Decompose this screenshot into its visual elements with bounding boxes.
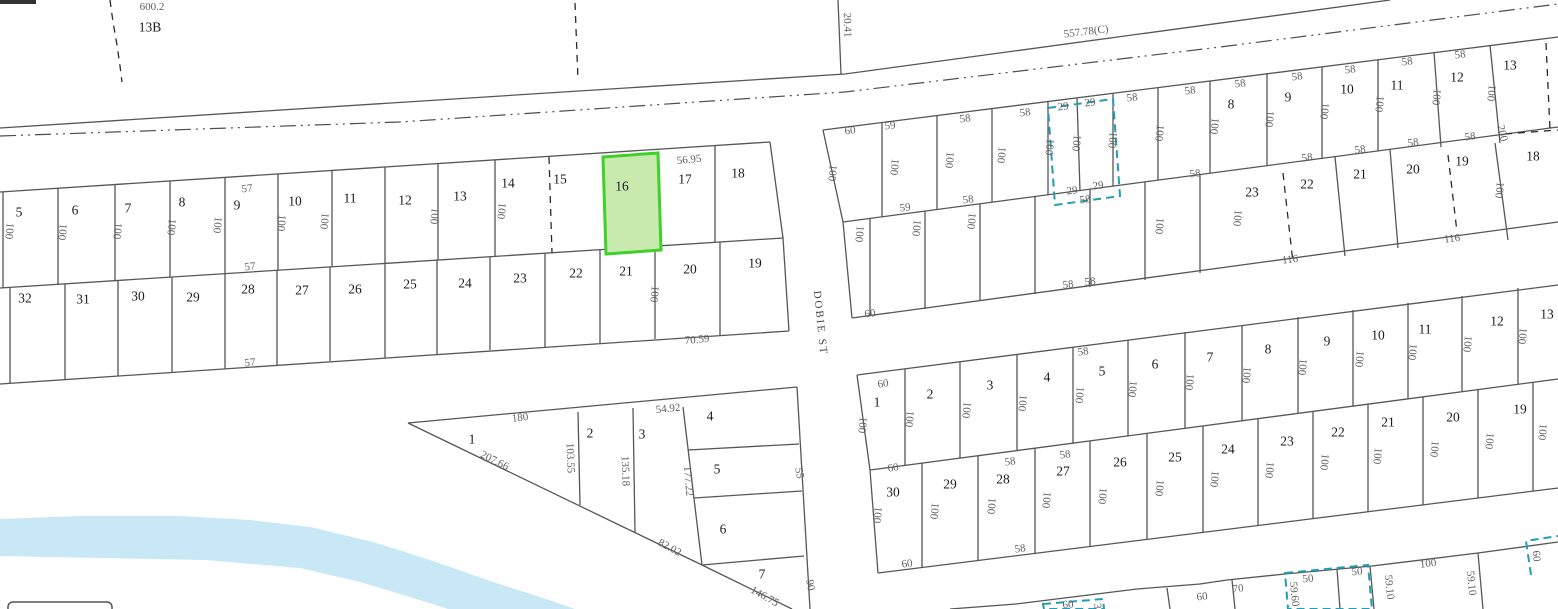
partial-label-box <box>8 602 112 609</box>
dimension-label: 70 <box>1232 582 1245 595</box>
lot-number-label: 22 <box>1331 425 1345 440</box>
lot-number-label: 24 <box>458 276 472 291</box>
dimension-label: 100 <box>870 506 884 524</box>
parcel-boundary <box>578 412 580 505</box>
lot-number-label: 18 <box>1526 149 1540 164</box>
dimension-label: 60 <box>1062 598 1075 609</box>
selected-parcel[interactable] <box>603 153 661 254</box>
dimension-label: 100 <box>1095 487 1109 505</box>
dimension-label: 146.75 <box>748 584 781 609</box>
dimension-label: 58 <box>1019 106 1032 119</box>
dimension-label: 100 <box>1152 217 1166 235</box>
dimension-label: 60 <box>844 124 857 137</box>
dimension-label: 57 <box>244 356 257 369</box>
dimension-label: 100 <box>1207 117 1221 135</box>
lot-number-label: 7 <box>125 201 132 216</box>
map-canvas[interactable]: 600.213B20.41557.78(C)567891011121314151… <box>0 0 1558 609</box>
lot-number-label: 10 <box>1371 328 1385 343</box>
dimension-label: 100 <box>1372 95 1386 113</box>
dimension-label: 100 <box>1152 124 1166 142</box>
lot-number-label: 2 <box>587 426 594 441</box>
lot-number-label: 28 <box>241 282 255 297</box>
lot-number-label: 25 <box>1168 450 1182 465</box>
dimension-label: 100 <box>1484 84 1498 102</box>
dimension-label: 58 <box>1301 151 1314 164</box>
dimension-label: 58 <box>959 112 972 125</box>
parcel-boundary <box>694 491 802 498</box>
lot-number-label: 20 <box>1446 410 1460 425</box>
lot-number-label: 10 <box>1340 82 1354 97</box>
dimension-label: 100 <box>902 410 916 428</box>
street-label-dobie-st: DOBIE ST <box>811 290 830 356</box>
lot-number-label: 6 <box>720 522 727 537</box>
parcel-boundary <box>1390 149 1398 248</box>
dimension-label: 100 <box>1152 479 1166 497</box>
dimension-label: 116 <box>1443 232 1461 246</box>
dimension-label: 60 <box>887 461 900 474</box>
dimension-label: 29 <box>1092 179 1105 192</box>
dimension-label: 180 <box>511 411 529 425</box>
lot-number-label: 4 <box>1044 370 1051 385</box>
lot-number-label: 11 <box>1419 322 1432 337</box>
lot-number-label: 14 <box>501 176 515 191</box>
lot-number-label: 8 <box>1228 97 1235 112</box>
lot-number-label: 6 <box>1152 357 1159 372</box>
lot-number-label: 27 <box>1056 464 1070 479</box>
lot-number-label: 23 <box>1280 434 1294 449</box>
parcel-boundary <box>1167 588 1170 609</box>
dimension-label: 20.41 <box>841 12 854 37</box>
dimension-label: 100 <box>2 222 16 240</box>
dimension-label: 58 <box>1077 345 1090 358</box>
dimension-label: 207.66 <box>478 449 511 474</box>
dimension-label: 100 <box>1535 423 1549 441</box>
lot-number-label: 1 <box>874 395 881 410</box>
dimension-label: 58 <box>1126 91 1139 104</box>
lot-number-label: 8 <box>179 195 186 210</box>
lot-number-label: 27 <box>295 283 309 298</box>
dimension-label: 58 <box>1291 70 1304 83</box>
lot-number-label: 23 <box>513 271 527 286</box>
dimension-label: 57 <box>244 260 257 273</box>
dimension-label: 100 <box>1419 557 1437 571</box>
dimension-label: 100 <box>852 225 866 243</box>
dimension-label: 100 <box>1482 432 1496 450</box>
dimension-label: 100 <box>1207 470 1221 488</box>
dimension-label: 100 <box>927 502 941 520</box>
lot-number-label: 26 <box>348 282 362 297</box>
dimension-label: 58 <box>1062 278 1075 291</box>
highlighted-parcel-outline[interactable] <box>1048 99 1120 205</box>
dimension-label: 100 <box>1182 373 1196 391</box>
dimension-label: 100 <box>1230 209 1244 227</box>
dimension-label: 177.22 <box>681 465 696 496</box>
lot-number-label: 23 <box>1245 185 1259 200</box>
dimension-label: 56.95 <box>676 153 702 168</box>
lot-number-label: 3 <box>639 427 646 442</box>
lot-number-label: 13B <box>139 20 162 35</box>
lot-number-label: 2 <box>927 387 934 402</box>
dimension-label: 100 <box>110 222 124 240</box>
dimension-label: 58 <box>1014 542 1027 555</box>
parcel-boundary <box>823 130 852 318</box>
dimension-label: 58 <box>1059 448 1072 461</box>
lot-number-label: 17 <box>678 172 692 187</box>
dimension-label: 59 <box>899 201 912 214</box>
dimension-label: 100 <box>274 214 288 232</box>
dimension-label: 60 <box>901 557 914 570</box>
parcel-boundary-dashed <box>1546 43 1550 130</box>
lot-number-label: 19 <box>748 256 762 271</box>
dimension-label: 200 <box>1494 124 1510 143</box>
lot-number-label: 22 <box>1300 177 1314 192</box>
dimension-label: 116 <box>1281 253 1299 267</box>
dimension-label: 135.18 <box>619 456 632 487</box>
dimension-label: 100 <box>887 158 901 176</box>
dimension-label: 100 <box>427 207 441 225</box>
dimension-label: 100 <box>1460 335 1474 353</box>
dimension-label: 100 <box>1492 181 1506 199</box>
dimension-label: 100 <box>1515 327 1529 345</box>
dimension-label: 58 <box>1189 167 1202 180</box>
parcel-boundary-dashed <box>1283 173 1293 263</box>
parcel-boundary <box>797 387 810 609</box>
dimension-label: 100 <box>1072 386 1086 404</box>
parcel-boundary <box>702 556 804 565</box>
dimension-label: 3 <box>1091 603 1103 609</box>
dimension-label: 103.55 <box>564 443 577 474</box>
dimension-label: 100 <box>1262 461 1276 479</box>
parcel-boundary <box>838 0 841 74</box>
lot-number-label: 3 <box>987 378 994 393</box>
dimension-label: 100 <box>942 151 956 169</box>
dimension-label: 100 <box>964 212 978 230</box>
lot-number-label: 10 <box>288 194 302 209</box>
lot-number-label: 16 <box>615 179 629 194</box>
lot-number-label: 13 <box>1503 58 1517 73</box>
lot-number-label: 28 <box>996 472 1010 487</box>
dimension-label: 50 <box>1351 565 1364 578</box>
lot-number-label: 30 <box>886 485 900 500</box>
lot-number-label: 9 <box>234 198 241 213</box>
lot-number-label: 24 <box>1221 442 1235 457</box>
dimension-label: 100 <box>1317 102 1331 120</box>
dimension-label: 100 <box>317 212 331 230</box>
parcel-boundary <box>0 0 1390 128</box>
dimension-label: 58 <box>1234 77 1247 90</box>
parcel-boundary <box>688 444 799 450</box>
dimension-label: 90 <box>803 579 817 592</box>
water-body <box>0 516 575 609</box>
dimension-label: 57 <box>241 182 254 195</box>
lot-number-label: 5 <box>1099 364 1106 379</box>
dimension-label: 100 <box>825 164 839 182</box>
lot-number-label: 5 <box>714 462 721 477</box>
lot-number-label: 4 <box>707 409 714 424</box>
dimension-label: 100 <box>1370 447 1384 465</box>
dimension-label: 100 <box>984 497 998 515</box>
dimension-label: 60 <box>864 307 877 320</box>
dimension-label: 100 <box>647 285 661 303</box>
dimension-label: 60 <box>1530 550 1543 563</box>
dimension-label: 100 <box>1352 350 1366 368</box>
dimension-label: 100 <box>909 219 923 237</box>
dimension-label: 100 <box>959 401 973 419</box>
parcel-boundary-dashed <box>110 0 122 82</box>
lot-number-label: 32 <box>18 291 32 306</box>
lot-number-label: 11 <box>344 191 357 206</box>
lot-number-label: 15 <box>553 172 567 187</box>
lot-number-label: 22 <box>569 266 583 281</box>
dimension-label: 100 <box>855 416 869 434</box>
lot-number-label: 5 <box>16 205 23 220</box>
parcel-boundary <box>408 387 797 423</box>
dimension-label: 58 <box>1454 48 1467 61</box>
dimension-label: 58 <box>1407 136 1420 149</box>
dimension-label: 100 <box>494 202 508 220</box>
dimension-label: 60 <box>877 377 890 390</box>
lot-number-label: 7 <box>1207 350 1214 365</box>
dimension-label: 58 <box>1401 55 1414 68</box>
lot-number-label: 20 <box>683 262 697 277</box>
lot-number-label: 21 <box>1353 167 1367 182</box>
lot-number-label: 9 <box>1285 90 1292 105</box>
dimension-label: 55 <box>792 467 806 480</box>
parcel-map[interactable]: 600.213B20.41557.78(C)567891011121314151… <box>0 0 1558 609</box>
lot-number-label: 12 <box>1450 70 1464 85</box>
parcel-boundary-dashed <box>575 3 578 80</box>
dimension-label: 100 <box>1105 131 1119 149</box>
lot-number-label: 9 <box>1324 334 1331 349</box>
lot-number-label: 25 <box>403 277 417 292</box>
lot-number-label: 31 <box>76 292 90 307</box>
dimension-label: 59.10 <box>1464 570 1479 596</box>
lot-number-label: 26 <box>1113 455 1127 470</box>
dimension-label: 100 <box>164 218 178 236</box>
parcel-boundary <box>1337 569 1340 609</box>
lot-number-label: 6 <box>72 203 79 218</box>
dimension-label: 29 <box>1057 100 1070 113</box>
dimension-label: 59.60 <box>1287 581 1302 607</box>
dimension-label: 58 <box>1079 193 1092 206</box>
parcel-boundary-dashed <box>549 157 552 253</box>
dimension-label: 100 <box>1239 366 1253 384</box>
dimension-label: 100 <box>1427 440 1441 458</box>
dimension-label: 58 <box>1084 275 1097 288</box>
dimension-label: 58 <box>1184 84 1197 97</box>
dimension-label: 70.59 <box>684 333 710 347</box>
dimension-label: 58 <box>1344 63 1357 76</box>
lot-number-label: 11 <box>1391 78 1404 93</box>
lot-number-label: 8 <box>1265 342 1272 357</box>
dimension-label: 58 <box>1464 130 1477 143</box>
lot-number-label: 20 <box>1406 162 1420 177</box>
lot-number-label: 19 <box>1513 402 1527 417</box>
dimension-label: 60 <box>1196 590 1209 603</box>
dimension-label: 100 <box>1262 110 1276 128</box>
dimension-label: 29 <box>1066 184 1079 197</box>
parcel-boundary <box>1335 157 1345 256</box>
dimension-label: 100 <box>1069 134 1083 152</box>
lot-number-label: 21 <box>619 264 633 279</box>
dimension-label: 100 <box>1429 88 1443 106</box>
dimension-label: 557.78(C) <box>1063 23 1109 40</box>
dimension-label: 29 <box>1084 96 1097 109</box>
lot-number-label: 18 <box>731 166 745 181</box>
dimension-label: 100 <box>1125 380 1139 398</box>
dimension-label: 100 <box>1405 343 1419 361</box>
dimension-label: 82.02 <box>656 537 683 559</box>
lot-number-label: 13 <box>1540 307 1554 322</box>
dimension-label: 100 <box>1317 453 1331 471</box>
dimension-label: 100 <box>994 146 1008 164</box>
dimension-label: 58 <box>962 193 975 206</box>
dimension-label: 100 <box>1039 491 1053 509</box>
parcel-boundary <box>633 408 635 532</box>
dimension-label: 100 <box>1015 394 1029 412</box>
dimension-label: 100 <box>210 216 224 234</box>
dimension-label: 58 <box>1004 455 1017 468</box>
parcel-boundary <box>770 142 789 331</box>
dimension-label: 100 <box>55 223 69 241</box>
dimension-label: 59 <box>884 119 897 132</box>
dimension-label: 100 <box>1042 138 1056 156</box>
lot-number-label: 13 <box>453 189 467 204</box>
lot-number-label: 21 <box>1381 415 1395 430</box>
lot-number-label: 29 <box>943 477 957 492</box>
dimension-label: 59.10 <box>1382 574 1397 600</box>
lot-number-label: 12 <box>398 193 412 208</box>
parcel-boundary <box>1478 553 1483 609</box>
lot-number-label: 7 <box>759 567 766 582</box>
lot-number-label: 1 <box>469 432 476 447</box>
dimension-label: 58 <box>1354 143 1367 156</box>
dimension-label: 100 <box>1295 358 1309 376</box>
dimension-label: 600.2 <box>140 1 165 13</box>
lot-number-label: 30 <box>131 289 145 304</box>
lot-number-label: 19 <box>1455 154 1469 169</box>
lot-number-label: 12 <box>1490 314 1504 329</box>
dimension-label: 54.92 <box>655 402 681 417</box>
parcel-boundary <box>878 488 1558 573</box>
lot-number-label: 29 <box>186 290 200 305</box>
dimension-label: 50 <box>1302 572 1315 585</box>
